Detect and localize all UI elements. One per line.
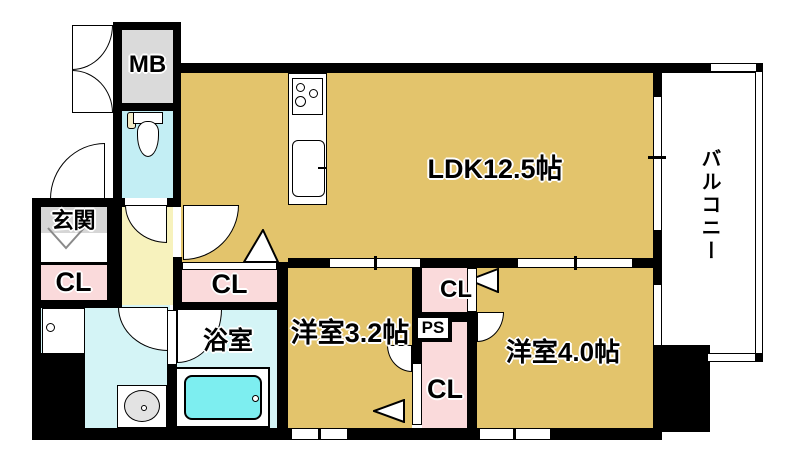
bathtub-drain-icon bbox=[252, 395, 259, 402]
ldk-label: LDK12.5帖 bbox=[390, 149, 600, 183]
washer-drain-icon bbox=[46, 323, 55, 332]
wall-cl-column-right bbox=[467, 312, 477, 428]
entrance-door-arc-icon bbox=[50, 143, 105, 199]
wall-east-middle bbox=[653, 230, 662, 285]
cl-lower-label: CL bbox=[419, 372, 471, 406]
window-tick bbox=[318, 428, 321, 440]
closet-lower-triangle-icon bbox=[373, 399, 405, 423]
wall-cl-entry-bottom bbox=[40, 300, 122, 308]
basin-drain-icon bbox=[141, 405, 147, 411]
window-tick bbox=[513, 428, 516, 440]
wall-genkan-right bbox=[107, 207, 122, 308]
mb-door-arc-icon bbox=[72, 70, 113, 113]
cl-entry-label: CL bbox=[40, 266, 107, 299]
mb-label: MB bbox=[122, 50, 173, 80]
wall-cl-hall-bottom bbox=[173, 302, 288, 310]
wall-entry-top-right bbox=[167, 198, 181, 207]
bathtub-icon bbox=[184, 375, 262, 420]
wall-bottom-outer bbox=[32, 428, 662, 440]
wall-block-southwest bbox=[32, 353, 85, 432]
balcony-corner-bottom bbox=[755, 353, 763, 362]
window-tick bbox=[648, 156, 666, 159]
stove-burner-icon bbox=[295, 96, 306, 107]
ps-label: PS bbox=[422, 318, 445, 338]
wall-top-main bbox=[181, 63, 763, 73]
wall-east-upper bbox=[653, 73, 662, 97]
mb-door-arc-icon bbox=[72, 25, 113, 70]
bathroom-label: 浴室 bbox=[177, 322, 279, 356]
stove-burner-icon bbox=[296, 83, 305, 92]
wall-wash-bath-divider bbox=[167, 365, 177, 428]
balcony-top-panel bbox=[710, 63, 757, 72]
wall-block-southeast bbox=[653, 345, 710, 432]
genkan-label: 玄関 bbox=[40, 205, 107, 233]
cl-upper-label: CL bbox=[430, 275, 482, 305]
wall-ldk-south-b bbox=[410, 258, 518, 268]
wall-mb-top bbox=[113, 22, 181, 30]
door-tick bbox=[574, 256, 577, 270]
floor-plan: PS MB 玄関 CL CL 浴室 LDK12.5帖 洋室3.2帖 洋室4.0帖… bbox=[0, 0, 800, 456]
door-tick bbox=[374, 256, 377, 270]
bath-divider-opening bbox=[167, 310, 177, 365]
wall-ldk-south-a bbox=[288, 258, 330, 268]
ldk-door-triangle-icon bbox=[243, 229, 279, 263]
wall-genkan-cl-line bbox=[40, 262, 107, 265]
room32-label: 洋室3.2帖 bbox=[283, 313, 417, 347]
pipe-space-box: PS bbox=[414, 314, 452, 342]
balcony-label: バルコニー bbox=[693, 135, 726, 275]
wall-mb-left bbox=[113, 22, 122, 207]
room40-east-window bbox=[653, 285, 662, 345]
balcony-rail-right bbox=[755, 72, 763, 353]
cl-hall-label: CL bbox=[182, 268, 277, 301]
ldk-balcony-window bbox=[653, 97, 662, 230]
balcony-rail-bottom bbox=[708, 353, 755, 362]
room40-label: 洋室4.0帖 bbox=[494, 334, 632, 366]
stove-burner-icon bbox=[309, 89, 318, 98]
sink-tap-icon bbox=[318, 167, 327, 169]
wall-hall-ldk-upper bbox=[173, 22, 181, 203]
wall-mb-toilet-divider bbox=[122, 103, 173, 111]
